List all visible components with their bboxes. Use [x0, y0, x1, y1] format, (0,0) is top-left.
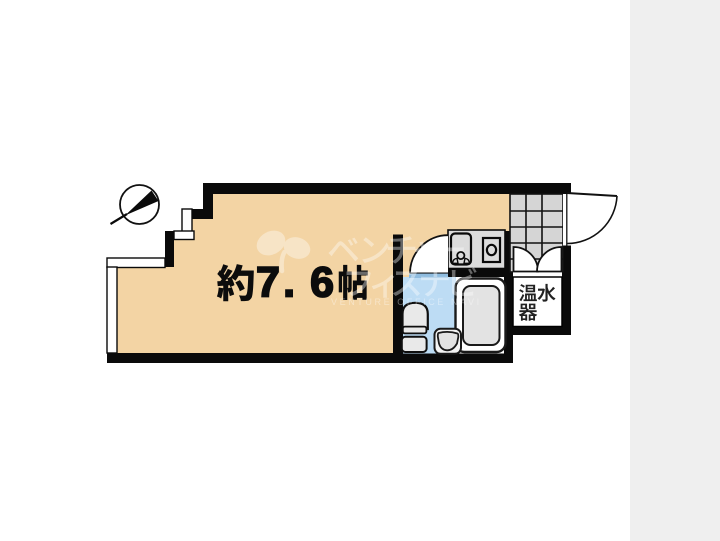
svg-text:7. 6: 7. 6	[256, 259, 334, 307]
svg-text:VENTURE OFFICE NAVI: VENTURE OFFICE NAVI	[331, 297, 482, 307]
